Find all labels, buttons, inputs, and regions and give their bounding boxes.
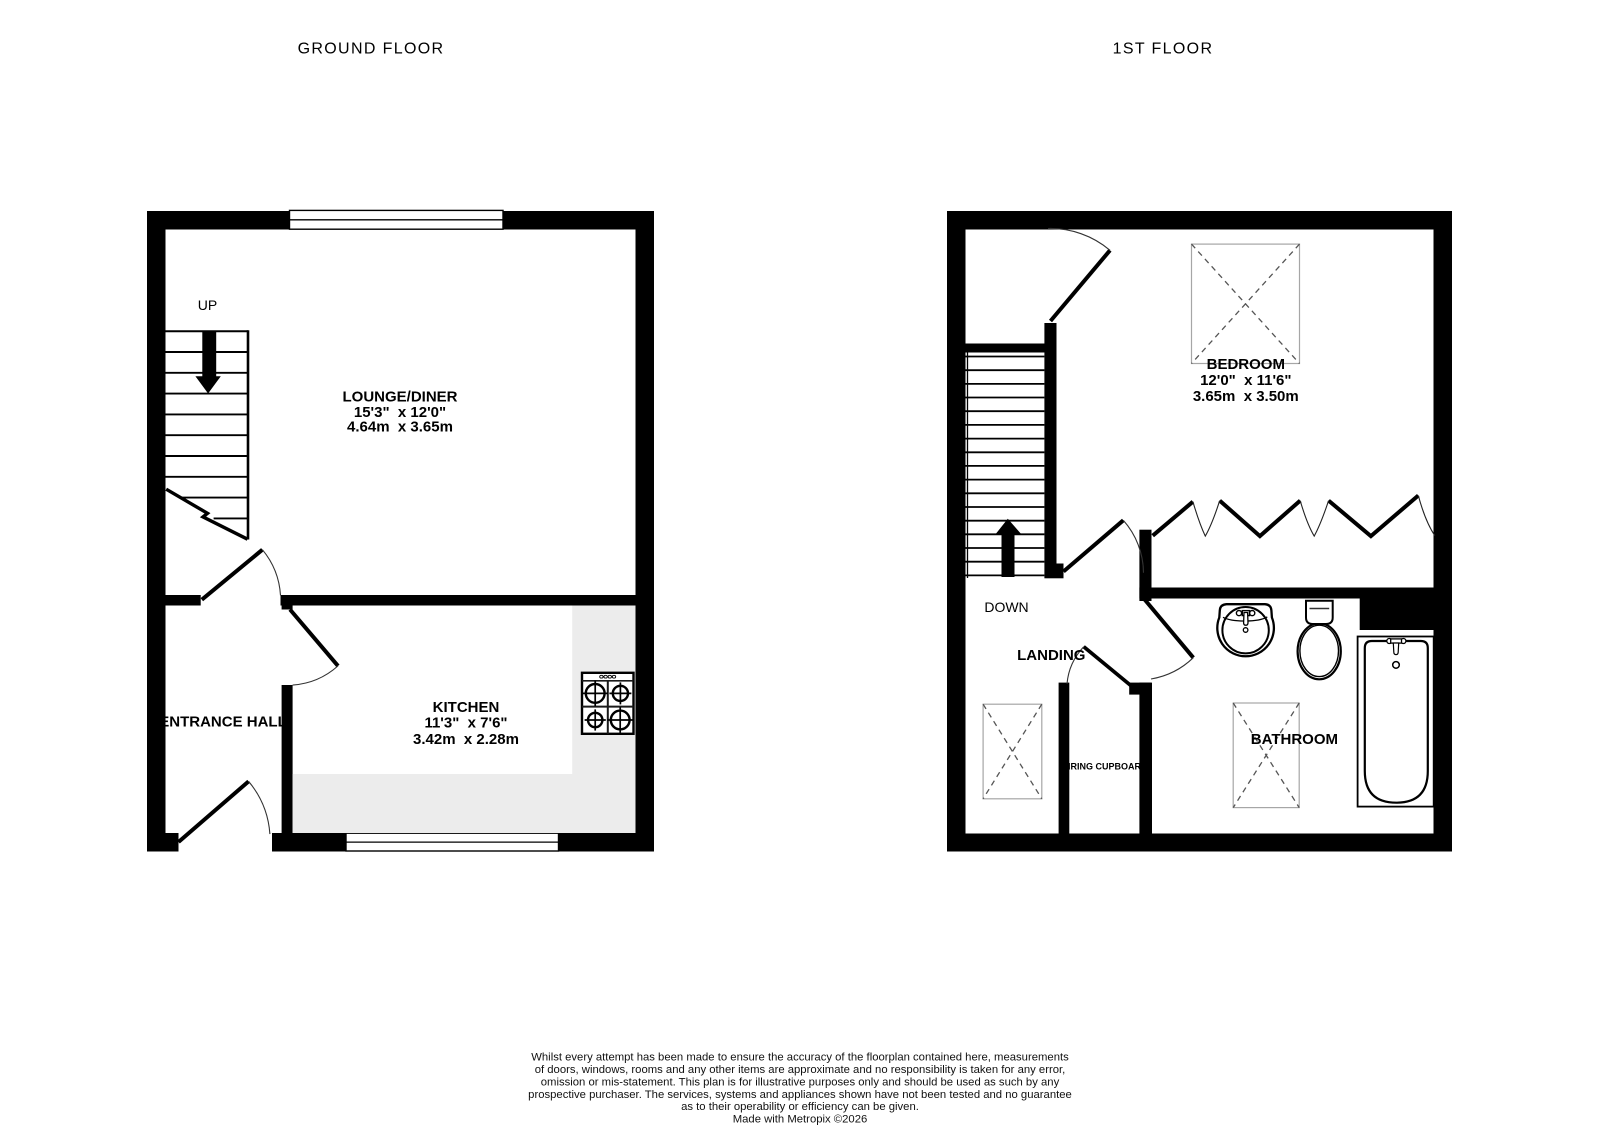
svg-text:1ST FLOOR: 1ST FLOOR <box>1113 40 1214 57</box>
svg-text:Made with Metropix ©2026: Made with Metropix ©2026 <box>733 1114 868 1126</box>
svg-text:11'3" x 7'6": 11'3" x 7'6" <box>424 715 507 732</box>
svg-text:DOWN: DOWN <box>984 599 1028 615</box>
svg-text:ENTRANCE HALL: ENTRANCE HALL <box>159 713 287 730</box>
svg-text:omission or mis-statement. Thi: omission or mis-statement. This plan is … <box>541 1076 1060 1088</box>
svg-text:BEDROOM: BEDROOM <box>1207 356 1285 373</box>
svg-text:12'0" x 11'6": 12'0" x 11'6" <box>1200 372 1291 389</box>
svg-text:as to their operability or eff: as to their operability or efficiency ca… <box>681 1101 919 1113</box>
svg-text:BATHROOM: BATHROOM <box>1251 731 1338 748</box>
svg-text:LANDING: LANDING <box>1017 647 1085 664</box>
svg-text:KITCHEN: KITCHEN <box>433 699 500 716</box>
svg-text:of doors, windows, rooms and a: of doors, windows, rooms and any other i… <box>535 1064 1066 1076</box>
svg-text:UP: UP <box>198 297 217 313</box>
svg-text:Whilst every attempt has been: Whilst every attempt has been made to en… <box>531 1052 1069 1064</box>
svg-text:3.65m x 3.50m: 3.65m x 3.50m <box>1193 388 1299 405</box>
svg-text:GROUND FLOOR: GROUND FLOOR <box>298 40 445 57</box>
svg-text:3.42m x 2.28m: 3.42m x 2.28m <box>413 731 519 748</box>
svg-text:4.64m x 3.65m: 4.64m x 3.65m <box>347 419 453 436</box>
svg-text:prospective purchaser. The ser: prospective purchaser. The services, sys… <box>528 1089 1072 1101</box>
svg-text:AIRING CUPBOARD: AIRING CUPBOARD <box>1061 762 1148 772</box>
